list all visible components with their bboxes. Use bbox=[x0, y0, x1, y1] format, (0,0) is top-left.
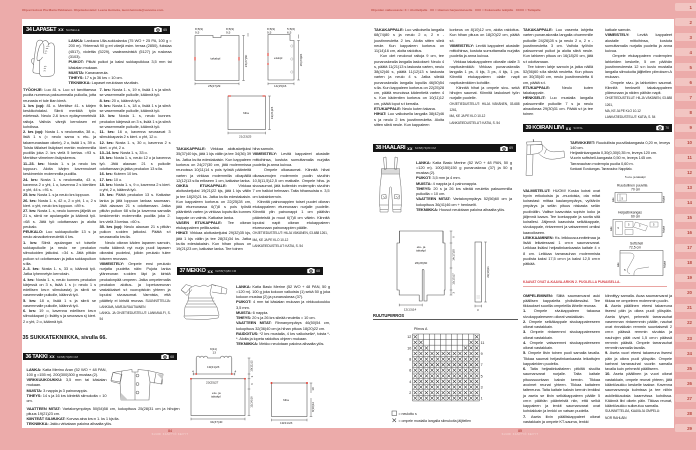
svg-text:9,5: 9,5 bbox=[267, 31, 272, 35]
svg-text:8: 8 bbox=[409, 358, 411, 362]
svg-text:12: 12 bbox=[407, 335, 411, 339]
svg-text:9: 9 bbox=[481, 352, 483, 356]
svg-text:9,5: 9,5 bbox=[226, 31, 231, 35]
svg-text:29(30)31: 29(30)31 bbox=[486, 266, 490, 278]
svg-text:3: 3 bbox=[477, 308, 479, 312]
svg-text:= ompele mustalla langalla sil: = ompele mustalla langalla silmukoita jä… bbox=[399, 419, 472, 423]
svg-text:5: 5 bbox=[653, 223, 655, 227]
svg-text:19(21)23: 19(21)23 bbox=[270, 107, 274, 120]
svg-text:21(23)25: 21(23)25 bbox=[239, 135, 252, 139]
svg-text:hulpiot: hulpiot bbox=[664, 261, 667, 268]
svg-text:etukpl: etukpl bbox=[274, 56, 283, 60]
svg-text:5: 5 bbox=[639, 224, 641, 228]
svg-text:hiha: hiha bbox=[283, 398, 289, 402]
svg-text:5: 5 bbox=[624, 268, 626, 272]
svg-text:60 cm: 60 cm bbox=[631, 215, 640, 219]
svg-text:3: 3 bbox=[481, 385, 483, 389]
svg-text:70 cm: 70 cm bbox=[631, 188, 640, 192]
svg-text:7: 7 bbox=[481, 363, 483, 367]
svg-text:26(28)30: 26(28)30 bbox=[415, 261, 428, 265]
svg-text:25(27)29: 25(27)29 bbox=[208, 84, 221, 88]
svg-text:11: 11 bbox=[481, 341, 485, 345]
svg-text:4: 4 bbox=[192, 370, 194, 374]
svg-text:13: 13 bbox=[213, 351, 217, 355]
svg-text:8(10)12: 8(10)12 bbox=[311, 402, 315, 412]
svg-text:19(21)23: 19(21)23 bbox=[207, 365, 220, 369]
svg-text:2: 2 bbox=[409, 391, 411, 395]
svg-text:19(21)23: 19(21)23 bbox=[280, 421, 293, 424]
svg-text:10: 10 bbox=[407, 346, 411, 350]
svg-text:taite: taite bbox=[617, 262, 620, 267]
svg-text:= neulottu s: = neulottu s bbox=[399, 412, 417, 416]
svg-text:14(17)20: 14(17)20 bbox=[452, 249, 456, 261]
svg-text:3: 3 bbox=[250, 375, 254, 377]
svg-text:72,5 cm: 72,5 cm bbox=[629, 246, 641, 250]
svg-text:4: 4 bbox=[409, 380, 411, 384]
svg-text:34(37)40: 34(37)40 bbox=[210, 420, 223, 424]
svg-text:1: 1 bbox=[481, 397, 483, 401]
svg-text:13(15)17: 13(15)17 bbox=[452, 273, 456, 285]
svg-text:6: 6 bbox=[409, 369, 411, 373]
svg-text:hulpiot: hulpiot bbox=[663, 196, 666, 203]
svg-text:hiha: hiha bbox=[243, 111, 249, 115]
svg-text:9,5: 9,5 bbox=[195, 31, 200, 35]
svg-text:5: 5 bbox=[618, 226, 620, 230]
svg-text:14(15)16: 14(15)16 bbox=[274, 84, 287, 88]
svg-text:hulpiot: hulpiot bbox=[663, 226, 666, 233]
svg-text:5: 5 bbox=[622, 197, 624, 201]
svg-text:5: 5 bbox=[481, 374, 483, 378]
svg-text:takakpl: takakpl bbox=[211, 57, 221, 61]
svg-text:23(25)27: 23(25)27 bbox=[206, 381, 219, 385]
svg-text:3: 3 bbox=[452, 292, 456, 294]
svg-text:12(13)14: 12(13)14 bbox=[404, 308, 417, 312]
svg-text:11(14)16: 11(14)16 bbox=[250, 396, 254, 408]
svg-text:4: 4 bbox=[235, 370, 237, 374]
svg-text:24(27)30: 24(27)30 bbox=[244, 55, 248, 68]
svg-text:6: 6 bbox=[250, 383, 254, 385]
svg-text:6,5: 6,5 bbox=[287, 31, 292, 35]
svg-text:6: 6 bbox=[452, 236, 456, 238]
svg-text:10: 10 bbox=[311, 387, 315, 391]
svg-text:takakpl: takakpl bbox=[211, 395, 221, 399]
svg-text:10(11)12: 10(11)12 bbox=[250, 360, 254, 372]
svg-text:taite: taite bbox=[610, 226, 613, 231]
svg-text:taite: taite bbox=[612, 197, 615, 202]
svg-text:takakpl: takakpl bbox=[416, 249, 426, 253]
svg-text:20(23)26: 20(23)26 bbox=[299, 54, 303, 67]
svg-text:5: 5 bbox=[628, 223, 630, 227]
